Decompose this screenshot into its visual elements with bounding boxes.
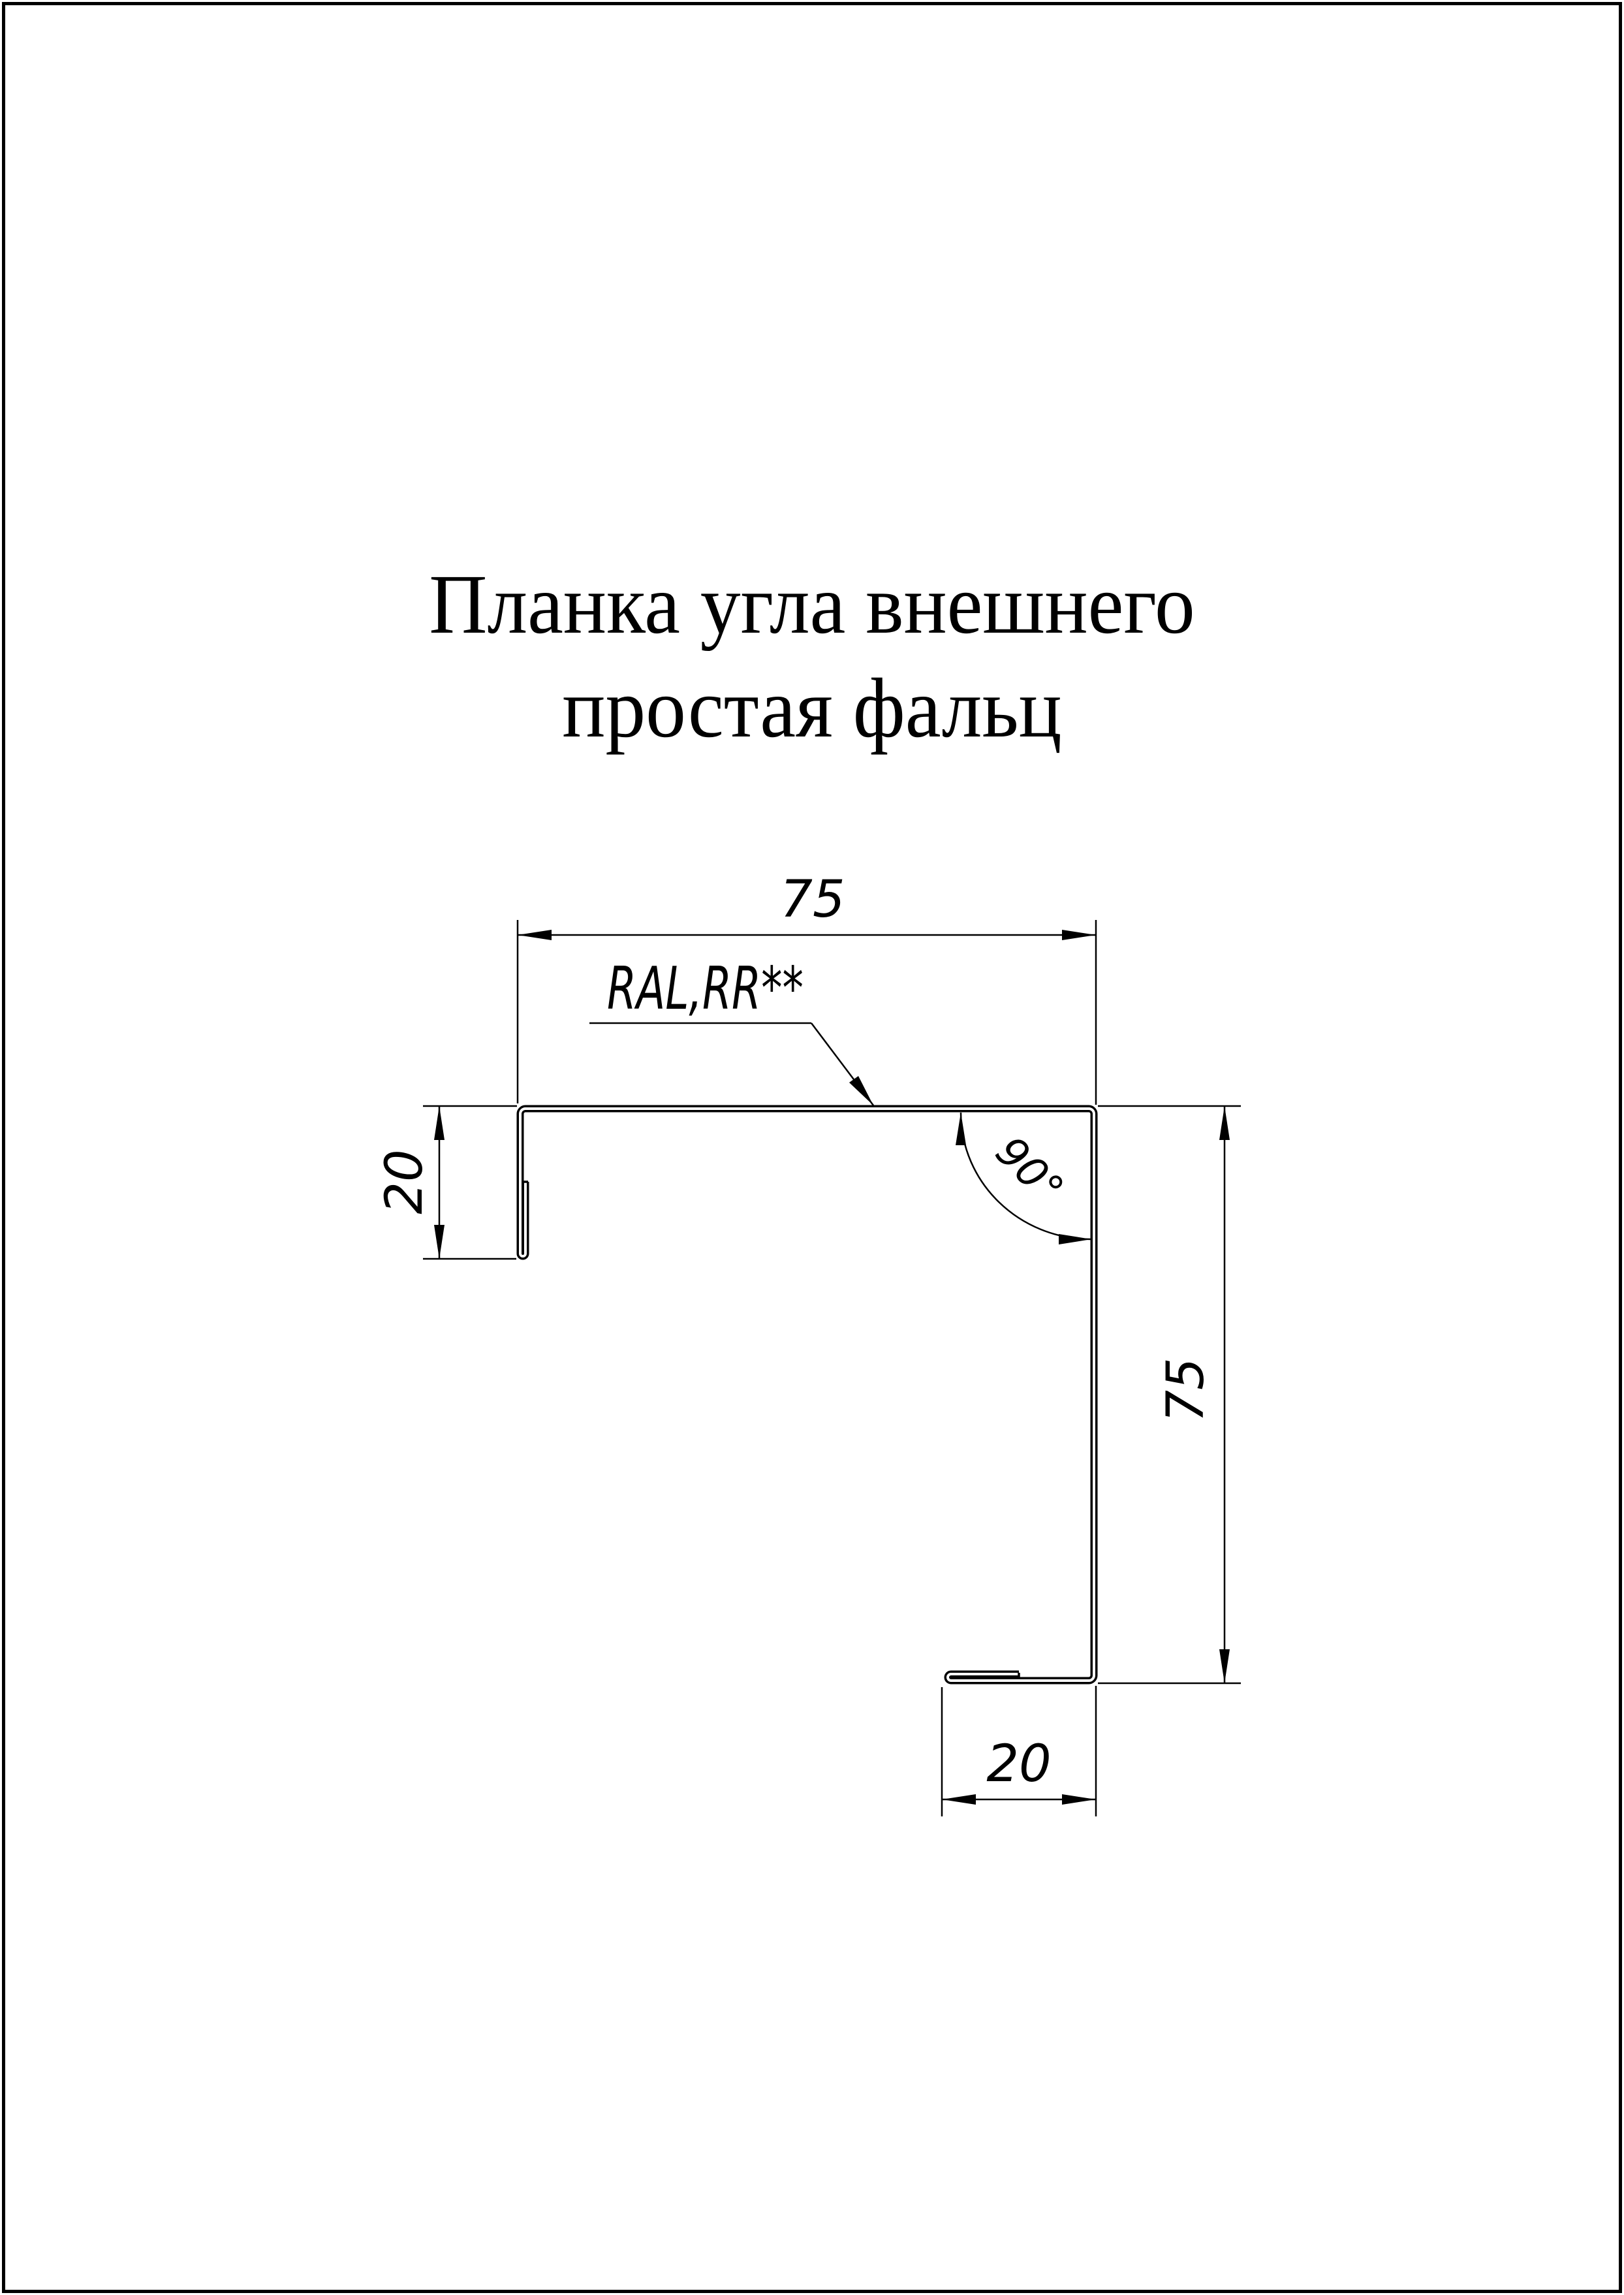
arrow-right-down (1219, 1649, 1230, 1683)
arrow-bottom-left (942, 1794, 976, 1805)
page-border (4, 4, 1621, 2292)
arrowheads (434, 930, 1230, 1805)
arrow-note-leader (849, 1076, 873, 1105)
dim-label-left-hem: 20 (375, 1149, 434, 1214)
arrow-bottom-right (1062, 1794, 1096, 1805)
arrow-top-right (1062, 930, 1096, 940)
profile-sheet-inner (520, 1109, 1094, 1681)
dim-label-bottom-hem: 20 (986, 1735, 1051, 1794)
drawing-canvas: Планка угла внешнего простая фальц (0, 0, 1624, 2295)
arrow-left-down (434, 1225, 445, 1259)
dim-label-top-width: 75 (780, 870, 845, 929)
arrow-angle-top (956, 1113, 966, 1145)
arrow-angle-right (1059, 1234, 1091, 1244)
profile-sheet-outer (520, 1109, 1094, 1681)
page-title-line-1: Планка угла внешнего (429, 558, 1195, 652)
profile-outline (520, 1109, 1094, 1681)
arrow-top-left (518, 930, 552, 940)
page-title-line-2: простая фальц (562, 661, 1061, 755)
arrow-right-up (1219, 1106, 1230, 1140)
dim-label-right-height: 75 (1157, 1357, 1215, 1422)
dimension-labels: 75 20 75 20 90° RAL,RR** (375, 870, 1215, 1794)
drawing-page: Планка угла внешнего простая фальц (0, 0, 1624, 2295)
material-note-label: RAL,RR** (607, 955, 804, 1022)
dimension-lines (423, 920, 1241, 1816)
arrow-left-up (434, 1106, 445, 1140)
title-block: Планка угла внешнего простая фальц (429, 558, 1195, 755)
